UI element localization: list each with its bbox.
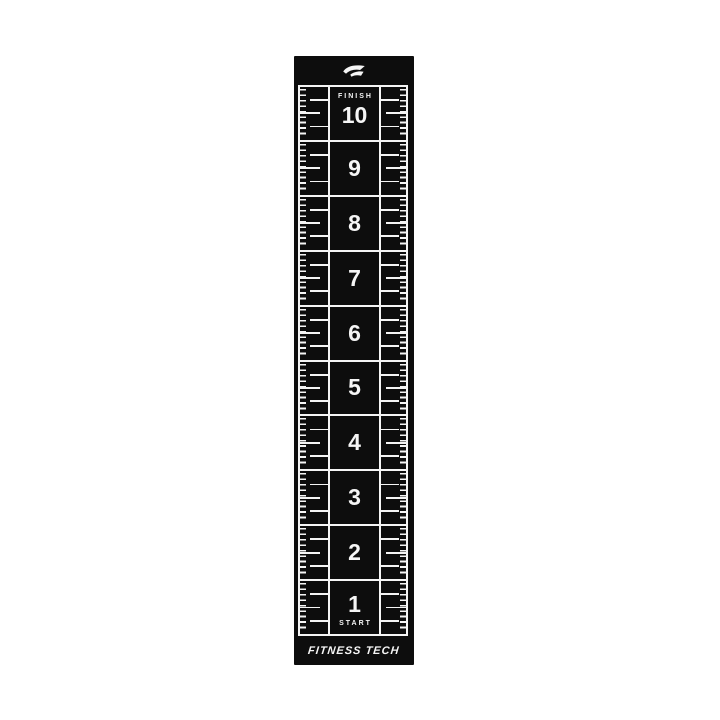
right-ruler (381, 471, 406, 524)
right-ruler (381, 416, 406, 469)
half-tick (300, 167, 320, 169)
cell-number: 6 (348, 322, 361, 345)
right-ruler (381, 362, 406, 415)
half-tick (300, 332, 320, 334)
cell-number: 8 (348, 212, 361, 235)
left-ruler (300, 416, 328, 469)
left-ruler (300, 581, 328, 634)
start-label: START (337, 620, 372, 627)
half-tick (386, 112, 406, 114)
measurement-grid: FINISH 10 9 8 (298, 85, 408, 636)
cell-number: 7 (348, 267, 361, 290)
cell-number: 1 (348, 593, 361, 616)
brand-wordmark: FITNESS TECH (308, 645, 401, 657)
right-ruler (381, 87, 406, 140)
right-ruler (381, 526, 406, 579)
half-tick (386, 442, 406, 444)
cell-center: 3 (328, 471, 381, 524)
cell-number: 5 (348, 376, 361, 399)
cell-center: 7 (328, 252, 381, 305)
mat-header-band (294, 56, 414, 85)
panther-logo-icon (341, 63, 367, 78)
half-tick (386, 277, 406, 279)
half-tick (386, 332, 406, 334)
mat-cell-7: 7 (300, 250, 406, 305)
half-tick (300, 222, 320, 224)
mat-cell-8: 8 (300, 195, 406, 250)
left-ruler (300, 526, 328, 579)
half-tick (300, 387, 320, 389)
half-tick (300, 277, 320, 279)
left-ruler (300, 87, 328, 140)
cell-number: 3 (348, 486, 361, 509)
mat-cell-6: 6 (300, 305, 406, 360)
mat-cell-3: 3 (300, 469, 406, 524)
half-tick (386, 607, 406, 609)
mat-cell-2: 2 (300, 524, 406, 579)
jump-measurement-mat: FINISH 10 9 8 (294, 56, 414, 665)
mat-cell-5: 5 (300, 360, 406, 415)
left-ruler (300, 252, 328, 305)
cell-center: FINISH 10 (328, 87, 381, 140)
mat-footer-band: FITNESS TECH (294, 636, 414, 665)
half-tick (386, 497, 406, 499)
cell-center: 1 START (328, 581, 381, 634)
cell-center: 2 (328, 526, 381, 579)
half-tick (300, 442, 320, 444)
mat-cell-4: 4 (300, 414, 406, 469)
half-tick (386, 167, 406, 169)
left-ruler (300, 362, 328, 415)
left-ruler (300, 307, 328, 360)
half-tick (300, 497, 320, 499)
half-tick (300, 607, 320, 609)
cell-number: 10 (342, 104, 368, 127)
half-tick (386, 222, 406, 224)
cell-center: 4 (328, 416, 381, 469)
cell-center: 5 (328, 362, 381, 415)
left-ruler (300, 197, 328, 250)
cell-number: 4 (348, 431, 361, 454)
cell-center: 6 (328, 307, 381, 360)
right-ruler (381, 581, 406, 634)
right-ruler (381, 307, 406, 360)
mat-cell-10: FINISH 10 (300, 87, 406, 140)
half-tick (386, 387, 406, 389)
left-ruler (300, 471, 328, 524)
mat-cell-9: 9 (300, 140, 406, 195)
cell-center: 9 (328, 142, 381, 195)
cell-number: 9 (348, 157, 361, 180)
cell-number: 2 (348, 541, 361, 564)
right-ruler (381, 197, 406, 250)
right-ruler (381, 252, 406, 305)
product-photo: FINISH 10 9 8 (0, 0, 720, 720)
half-tick (300, 112, 320, 114)
cell-center: 8 (328, 197, 381, 250)
right-ruler (381, 142, 406, 195)
finish-label: FINISH (336, 93, 373, 100)
left-ruler (300, 142, 328, 195)
half-tick (386, 552, 406, 554)
half-tick (300, 552, 320, 554)
mat-cell-1: 1 START (300, 579, 406, 634)
